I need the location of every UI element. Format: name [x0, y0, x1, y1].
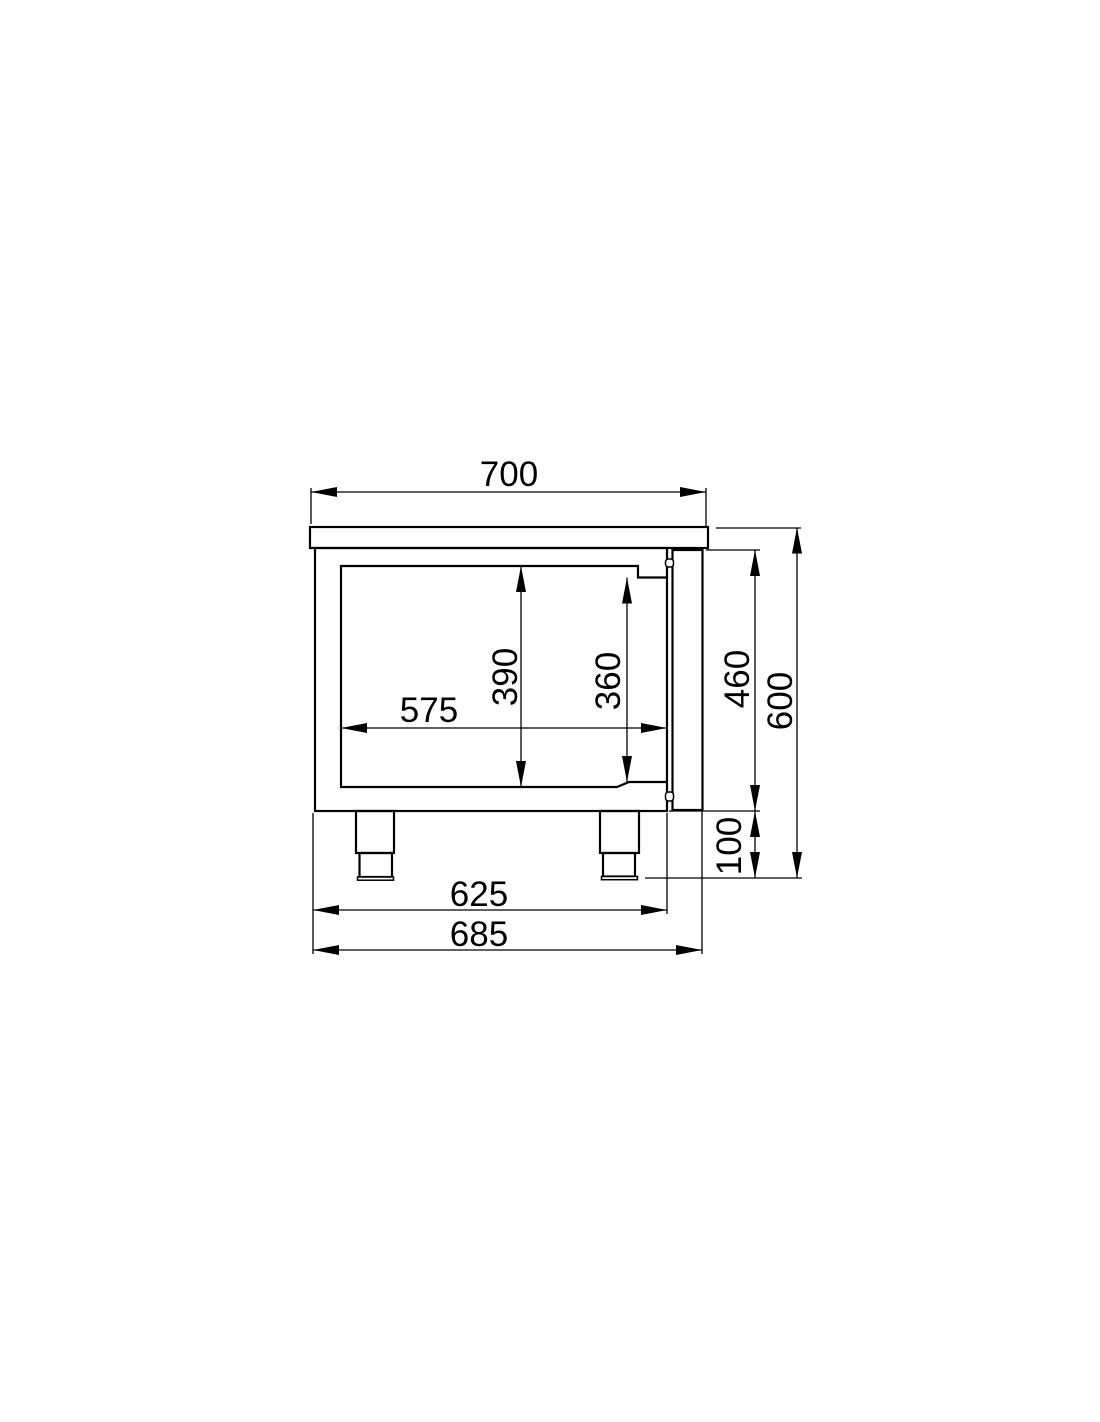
dim-label-inner-height: 390	[486, 648, 525, 706]
hinge-bottom-icon	[666, 792, 674, 801]
leg-right	[600, 811, 639, 880]
dimension-drawing: 700 575 390 360 460 600 100 625 685	[0, 0, 1100, 1422]
dim-label-inner-depth: 575	[400, 691, 458, 730]
dim-label-body-height: 460	[718, 650, 757, 708]
dim-inner-depth	[341, 723, 667, 733]
dim-label-inner-height-right: 360	[589, 652, 628, 710]
dim-label-total-height: 600	[761, 672, 800, 730]
dim-label-top-depth: 700	[480, 455, 538, 494]
dim-label-leg-height: 100	[710, 817, 749, 875]
dim-label-base-depth-outer: 685	[450, 915, 508, 954]
worktop	[310, 527, 708, 548]
dim-label-base-depth-inner: 625	[450, 875, 508, 914]
leg-left	[356, 811, 394, 880]
door-panel	[673, 550, 703, 810]
hinge-top-icon	[666, 559, 674, 567]
technical-drawing-page: 700 575 390 360 460 600 100 625 685	[0, 0, 1100, 1422]
dim-leg-height	[750, 811, 760, 878]
extension-lines	[311, 488, 802, 954]
